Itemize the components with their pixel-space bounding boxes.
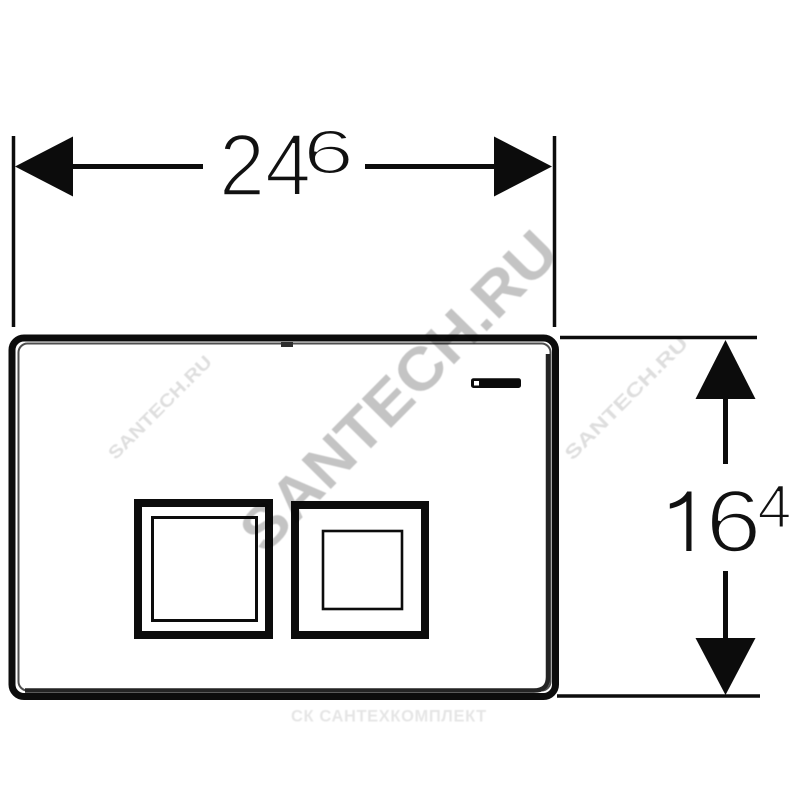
svg-text:СК САНТЕХКОМПЛЕКТ: СК САНТЕХКОМПЛЕКТ (291, 708, 487, 726)
svg-text:6: 6 (706, 472, 762, 571)
svg-text:4: 4 (758, 473, 792, 541)
svg-text:6: 6 (303, 119, 354, 188)
svg-text:24: 24 (219, 116, 311, 215)
